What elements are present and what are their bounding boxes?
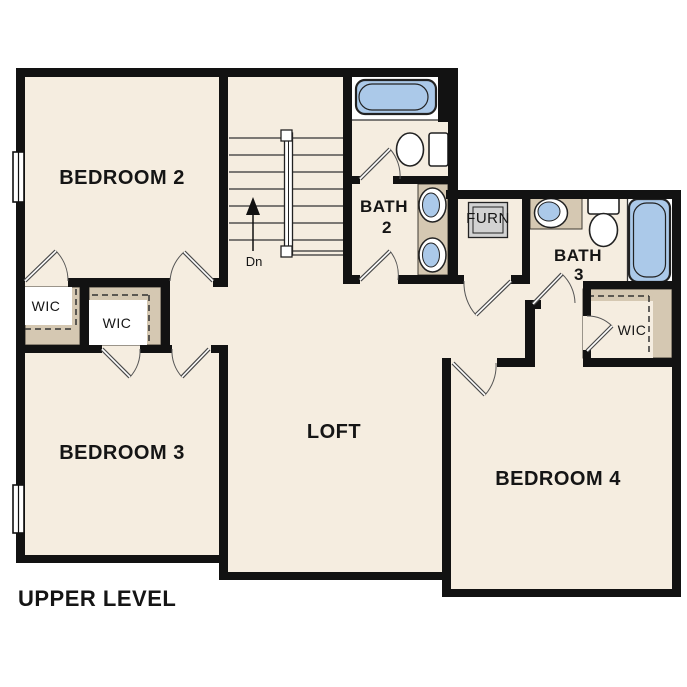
wic4-label: WIC <box>618 322 647 338</box>
toilet-icon-bath3 <box>588 197 619 247</box>
floor-plan-canvas: BEDROOM 2 BEDROOM 3 BEDROOM 4 LOFT BATH … <box>0 0 687 687</box>
stairs-down-label: Dn <box>246 254 263 269</box>
furnace-label: FURN <box>466 210 510 227</box>
sink-icon-bath2-1 <box>419 188 446 222</box>
sink-icon-bath3 <box>535 199 568 228</box>
bathtub-icon-bath2 <box>356 80 436 114</box>
wic2-label: WIC <box>103 315 132 331</box>
loft-label: LOFT <box>307 421 361 443</box>
bedroom2-label: BEDROOM 2 <box>59 167 185 189</box>
sink-icon-bath2-2 <box>419 238 446 272</box>
bath3-label: BATH <box>554 246 602 265</box>
bath2-label: BATH <box>360 197 408 216</box>
wic1-label: WIC <box>32 298 61 314</box>
floor-plan: BEDROOM 2 BEDROOM 3 BEDROOM 4 LOFT BATH … <box>0 0 687 687</box>
window-icon-bedroom3 <box>13 485 24 533</box>
window-icon-bedroom2 <box>13 152 24 202</box>
bath2-number: 2 <box>382 218 392 237</box>
page-title: UPPER LEVEL <box>18 586 176 611</box>
bedroom4-label: BEDROOM 4 <box>495 468 621 490</box>
bedroom3-label: BEDROOM 3 <box>59 442 185 464</box>
bathtub-icon-bath3 <box>629 199 670 282</box>
bath3-number: 3 <box>574 265 584 284</box>
